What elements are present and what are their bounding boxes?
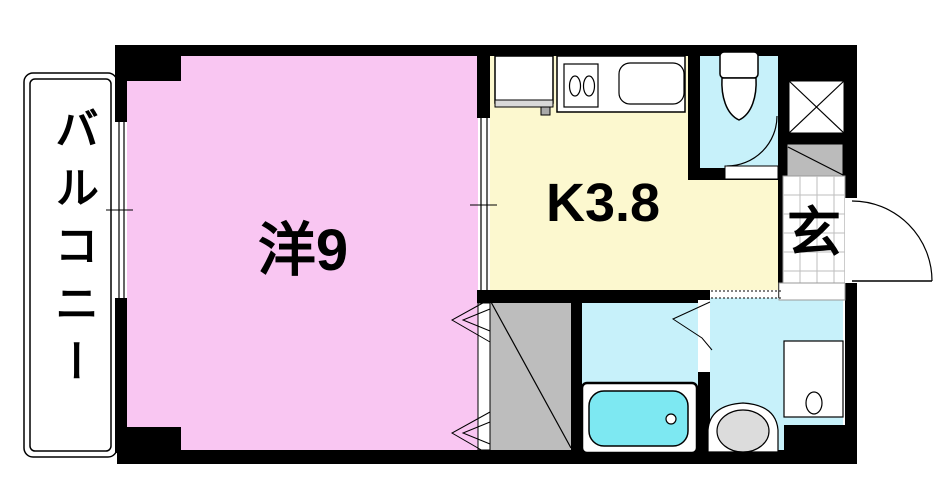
washroom-boundary-dotted <box>703 291 781 298</box>
toilet-door-leaf <box>725 166 778 179</box>
floor-plan: バルコニー 洋9 K3.8 玄 <box>0 0 946 487</box>
wall-segment <box>117 427 181 464</box>
refrigerator-base <box>495 100 553 107</box>
bathtub-drain <box>666 414 676 424</box>
kitchen-label: K3.8 <box>528 176 678 230</box>
western-room-label: 洋9 <box>228 222 378 280</box>
wall-segment <box>784 425 857 464</box>
entrance-door-arc <box>852 201 932 281</box>
entrance-step <box>779 283 845 300</box>
stove-burner <box>570 76 581 96</box>
wash-basin <box>717 410 769 452</box>
entrance-label: 玄 <box>783 206 845 260</box>
kitchen-sink <box>619 63 684 104</box>
wall-segment <box>571 300 582 452</box>
wall-segment <box>477 45 490 118</box>
entrance-door-opening <box>845 198 857 283</box>
washer-faucet <box>806 392 822 414</box>
refrigerator-tab <box>541 107 550 115</box>
wall-segment <box>477 290 705 303</box>
balcony-label: バルコニー <box>44 106 100 452</box>
stove-burner <box>584 76 595 96</box>
closet-door-track <box>478 303 490 450</box>
toilet-tank <box>720 52 758 78</box>
partition-opening <box>478 118 490 290</box>
refrigerator-space <box>495 56 553 103</box>
